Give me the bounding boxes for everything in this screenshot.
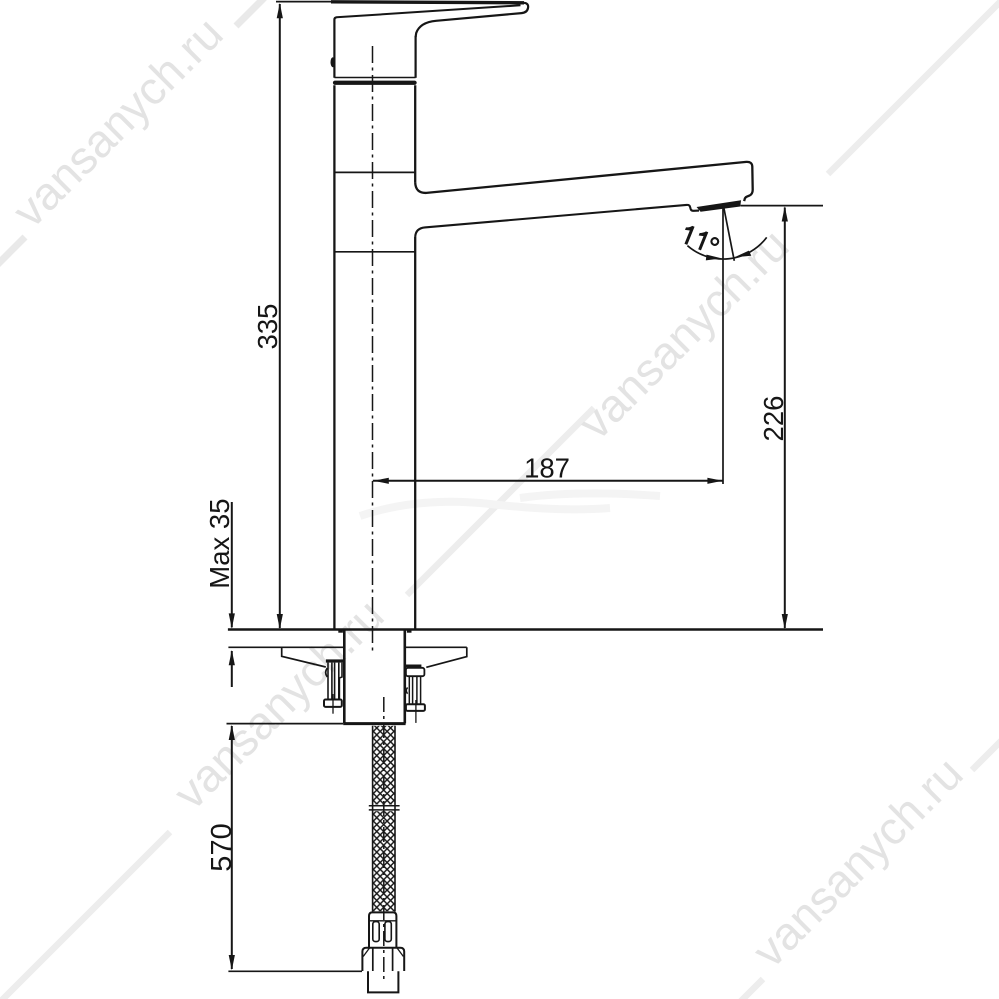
svg-text:187: 187 [524, 453, 570, 484]
svg-text:570: 570 [206, 823, 238, 871]
svg-text:226: 226 [758, 396, 789, 442]
svg-text:Max 35: Max 35 [204, 499, 235, 589]
svg-text:335: 335 [252, 304, 283, 350]
